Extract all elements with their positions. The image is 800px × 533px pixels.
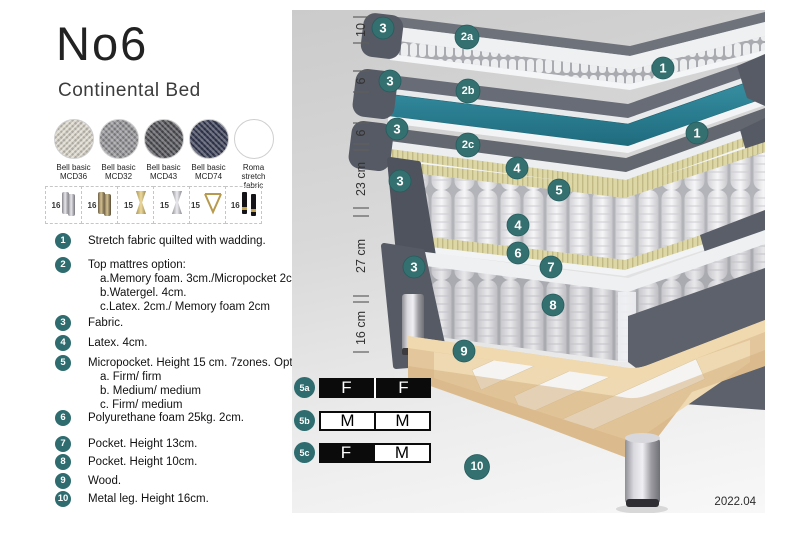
- leg-option: 16: [225, 186, 262, 224]
- swatch-label: MCD36: [60, 172, 87, 181]
- badge-3: 3: [379, 70, 401, 92]
- legend-number-badge: 5: [55, 355, 71, 371]
- badge-2a: 2a: [455, 25, 479, 49]
- legend-item-7: 7 Pocket. Height 13cm.: [55, 437, 197, 451]
- legend-item-6: 6 Polyurethane foam 25kg. 2cm.: [55, 411, 244, 425]
- fabric-swatches: Bell basicMCD36 Bell basicMCD32 Bell bas…: [51, 119, 276, 190]
- firmness-row-5c: 5c F M: [294, 442, 431, 463]
- legend-subtext: a. Firm/ firm: [100, 370, 311, 384]
- legend-subtext: b.Watergel. 4cm.: [100, 286, 301, 300]
- leg-option: 15: [117, 186, 154, 224]
- firmness-row-5b: 5b M M: [294, 410, 431, 431]
- firmness-badge: 5a: [294, 377, 315, 398]
- svg-text:3: 3: [379, 21, 386, 36]
- legend-text: Pocket. Height 13cm.: [88, 438, 197, 450]
- leg-option: 16: [45, 186, 82, 224]
- legend-text: Stretch fabric quilted with wadding.: [88, 235, 266, 247]
- legend-item-3: 3 Fabric.: [55, 316, 123, 330]
- legend-number-badge: 4: [55, 335, 71, 351]
- leg-height: 16: [52, 201, 61, 210]
- version-label: 2022.04: [714, 496, 756, 508]
- badge-3: 3: [403, 256, 425, 278]
- leg-height: 16: [88, 201, 97, 210]
- svg-text:4: 4: [514, 218, 522, 233]
- legend-number-badge: 9: [55, 473, 71, 489]
- legend-number-badge: 3: [55, 315, 71, 331]
- fabric-swatch-image: [144, 119, 184, 159]
- legend-number-badge: 7: [55, 436, 71, 452]
- fabric-swatch: Bell basicMCD74: [186, 119, 231, 190]
- badge-3: 3: [389, 170, 411, 192]
- badge-2b: 2b: [456, 79, 480, 103]
- legend-text: Wood.: [88, 475, 121, 487]
- firmness-cell: M: [374, 411, 431, 431]
- badge-4: 4: [507, 214, 529, 236]
- fabric-swatch: Romastretch fabric: [231, 119, 276, 190]
- firmness-badge: 5b: [294, 410, 315, 431]
- badge-1: 1: [686, 122, 708, 144]
- leg-hairpin-gold-icon: [202, 191, 224, 220]
- badge-3: 3: [386, 118, 408, 140]
- legend-item-9: 9 Wood.: [55, 474, 121, 488]
- legend-item-1: 1 Stretch fabric quilted with wadding.: [55, 234, 266, 248]
- svg-text:3: 3: [410, 260, 417, 275]
- leg-options: 16 16 15 15 15 16: [46, 186, 262, 224]
- legend-item-8: 8 Pocket. Height 10cm.: [55, 455, 197, 469]
- measurement-label: 23 cm: [354, 162, 368, 196]
- leg-twisted-silver-icon: [171, 191, 183, 219]
- fabric-swatch: Bell basicMCD36: [51, 119, 96, 190]
- legend-text: Latex. 4cm.: [88, 337, 147, 349]
- leg-height: 16: [231, 201, 240, 210]
- badge-5: 5: [548, 179, 570, 201]
- legend-text: Pocket. Height 10cm.: [88, 456, 197, 468]
- legend-number-badge: 1: [55, 233, 71, 249]
- legend-number-badge: 8: [55, 454, 71, 470]
- firmness-badge: 5c: [294, 442, 315, 463]
- legend-number-badge: 2: [55, 257, 71, 273]
- legend-text: Micropocket. Height 15 cm. 7zones. Optio…: [88, 357, 311, 369]
- fabric-swatch: Bell basicMCD43: [141, 119, 186, 190]
- legend-subtext: c.Latex. 2cm./ Memory foam 2cm: [100, 300, 301, 314]
- legend-item-2: 2 Top mattres option: a.Memory foam. 3cm…: [55, 258, 301, 314]
- firmness-bar: F F: [319, 378, 431, 398]
- diagram-panel: 10 6 6 23 cm 27 cm 16 cm 3 2a 1 3 2b 1 3…: [292, 10, 765, 513]
- badge-10: 10: [465, 455, 490, 480]
- measurement-label: 16 cm: [354, 311, 368, 345]
- badge-9: 9: [453, 340, 475, 362]
- svg-text:6: 6: [514, 246, 521, 261]
- leg-tapered-black-icon: [242, 192, 256, 219]
- fabric-swatch: Bell basicMCD32: [96, 119, 141, 190]
- legend-item-10: 10 Metal leg. Height 16cm.: [55, 492, 209, 506]
- firmness-cell: F: [319, 443, 373, 463]
- svg-text:3: 3: [393, 122, 400, 137]
- swatch-label: Bell basic: [191, 163, 225, 172]
- swatch-label: MCD43: [150, 172, 177, 181]
- fabric-swatch-image: [99, 119, 139, 159]
- svg-text:4: 4: [513, 161, 521, 176]
- badge-8: 8: [542, 294, 564, 316]
- firmness-cell: F: [319, 378, 374, 398]
- leg-option: 15: [153, 186, 190, 224]
- swatch-label: Bell basic: [101, 163, 135, 172]
- leg-height: 15: [124, 201, 133, 210]
- firmness-cell: M: [319, 411, 376, 431]
- leg-cylinder-silver-icon: [62, 192, 75, 219]
- bed-exploded-diagram: 10 6 6 23 cm 27 cm 16 cm 3 2a 1 3 2b 1 3…: [292, 10, 765, 513]
- legend-text: Polyurethane foam 25kg. 2cm.: [88, 412, 244, 424]
- svg-text:2b: 2b: [462, 85, 475, 97]
- firmness-bar: F M: [319, 443, 431, 463]
- swatch-label: Bell basic: [146, 163, 180, 172]
- badge-1: 1: [652, 57, 674, 79]
- svg-text:1: 1: [693, 126, 700, 141]
- measurement-label: 6: [354, 77, 368, 84]
- legend-text: Top mattres option:: [88, 259, 186, 271]
- svg-text:2c: 2c: [462, 139, 474, 151]
- legend-number-badge: 10: [55, 491, 71, 507]
- svg-text:9: 9: [460, 344, 467, 359]
- swatch-label: MCD32: [105, 172, 132, 181]
- badge-6: 6: [507, 242, 529, 264]
- firmness-row-5a: 5a F F: [294, 377, 431, 398]
- fabric-swatch-image: [189, 119, 229, 159]
- legend-text: Fabric.: [88, 317, 123, 329]
- svg-text:7: 7: [547, 260, 554, 275]
- legend-subtext: c. Firm/ medium: [100, 398, 311, 412]
- swatch-label: Bell basic: [56, 163, 90, 172]
- svg-text:3: 3: [386, 74, 393, 89]
- badge-7: 7: [540, 256, 562, 278]
- fabric-swatch-image: [54, 119, 94, 159]
- firmness-bar: M M: [319, 411, 431, 431]
- legend-text: Metal leg. Height 16cm.: [88, 493, 209, 505]
- leg-height: 15: [191, 201, 200, 210]
- svg-text:3: 3: [396, 174, 403, 189]
- leg-height: 15: [160, 201, 169, 210]
- fabric-swatch-image: [234, 119, 274, 159]
- legend-subtext: a.Memory foam. 3cm./Micropocket 2cm: [100, 272, 301, 286]
- swatch-label: MCD74: [195, 172, 222, 181]
- legend-number-badge: 6: [55, 410, 71, 426]
- leg-option: 15: [189, 186, 226, 224]
- swatch-label: Roma: [243, 163, 264, 172]
- measurement-label: 27 cm: [354, 239, 368, 273]
- badge-2c: 2c: [456, 133, 480, 157]
- page-title: No6: [56, 16, 148, 71]
- firmness-cell: F: [376, 378, 431, 398]
- measurement-label: 10: [354, 23, 368, 37]
- legend-item-5: 5 Micropocket. Height 15 cm. 7zones. Opt…: [55, 356, 311, 412]
- svg-text:2a: 2a: [461, 31, 474, 43]
- svg-text:8: 8: [549, 298, 556, 313]
- badge-4: 4: [506, 157, 528, 179]
- svg-text:1: 1: [659, 61, 666, 76]
- svg-text:10: 10: [471, 461, 484, 473]
- legend-subtext: b. Medium/ medium: [100, 384, 311, 398]
- measurement-label: 6: [354, 129, 368, 136]
- svg-text:5: 5: [555, 183, 562, 198]
- firmness-cell: M: [373, 443, 431, 463]
- legend-item-4: 4 Latex. 4cm.: [55, 336, 147, 350]
- badge-3: 3: [372, 17, 394, 39]
- leg-cylinder-bronze-icon: [98, 192, 111, 219]
- page-subtitle: Continental Bed: [58, 80, 201, 102]
- leg-option: 16: [81, 186, 118, 224]
- leg-twisted-gold-icon: [135, 191, 147, 219]
